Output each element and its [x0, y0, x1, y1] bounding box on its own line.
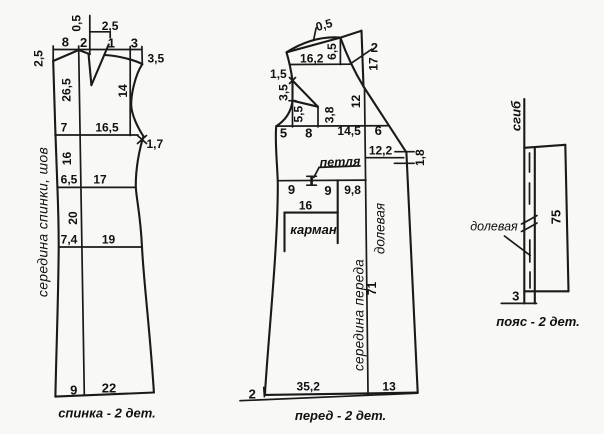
svg-text:середина спинки, шов: середина спинки, шов [35, 147, 51, 297]
svg-text:2,5: 2,5 [102, 19, 119, 33]
svg-text:петля: петля [319, 154, 361, 169]
svg-text:35,2: 35,2 [297, 380, 321, 394]
svg-text:26,5: 26,5 [59, 78, 73, 102]
svg-text:6: 6 [375, 123, 382, 138]
svg-text:75: 75 [548, 210, 563, 224]
svg-text:долевая: долевая [470, 220, 518, 234]
svg-text:1: 1 [108, 36, 115, 51]
svg-text:2: 2 [249, 387, 256, 402]
svg-text:3: 3 [512, 289, 519, 304]
svg-text:5: 5 [280, 126, 287, 141]
svg-text:середина переда: середина переда [352, 259, 367, 371]
svg-text:5,5: 5,5 [292, 106, 306, 123]
svg-text:17: 17 [367, 57, 381, 71]
svg-text:0,5: 0,5 [70, 15, 84, 32]
svg-text:8: 8 [62, 35, 69, 50]
svg-text:71: 71 [365, 282, 379, 296]
svg-text:16,5: 16,5 [95, 121, 119, 135]
svg-text:2,5: 2,5 [32, 50, 46, 67]
svg-text:19: 19 [102, 233, 116, 247]
svg-text:1,8: 1,8 [413, 149, 427, 166]
svg-text:13: 13 [382, 380, 396, 394]
svg-text:3,5: 3,5 [277, 84, 291, 101]
svg-text:22: 22 [102, 381, 116, 396]
svg-text:14: 14 [116, 84, 130, 98]
svg-text:перед - 2 дет.: перед - 2 дет. [295, 408, 386, 423]
svg-text:17: 17 [93, 173, 107, 187]
svg-text:9,8: 9,8 [344, 183, 361, 197]
svg-text:16: 16 [60, 152, 74, 166]
svg-text:3,8: 3,8 [322, 106, 336, 123]
svg-text:сгиб: сгиб [509, 100, 524, 131]
svg-text:9: 9 [70, 383, 77, 398]
svg-text:7,4: 7,4 [61, 233, 78, 247]
svg-text:1,5: 1,5 [270, 67, 287, 81]
svg-text:16: 16 [299, 199, 313, 213]
svg-text:9: 9 [324, 183, 331, 198]
svg-text:долевая: долевая [373, 203, 388, 254]
svg-text:карман: карман [290, 222, 337, 237]
svg-text:спинка - 2 дет.: спинка - 2 дет. [58, 406, 156, 421]
svg-text:3,5: 3,5 [148, 52, 165, 66]
svg-text:6,5: 6,5 [61, 173, 78, 187]
svg-text:7: 7 [61, 121, 68, 135]
svg-text:14,5: 14,5 [337, 124, 361, 138]
svg-text:1,7: 1,7 [147, 137, 164, 151]
svg-text:9: 9 [288, 182, 295, 197]
svg-text:пояс - 2 дет.: пояс - 2 дет. [496, 314, 579, 329]
svg-text:6,5: 6,5 [325, 43, 339, 60]
svg-text:8: 8 [305, 126, 312, 141]
svg-text:2: 2 [80, 35, 87, 50]
svg-text:20: 20 [66, 211, 80, 225]
svg-text:12,2: 12,2 [369, 144, 393, 158]
svg-text:2: 2 [371, 40, 378, 55]
svg-text:3: 3 [131, 36, 138, 51]
svg-text:12: 12 [349, 95, 363, 109]
svg-text:16,2: 16,2 [300, 52, 324, 66]
